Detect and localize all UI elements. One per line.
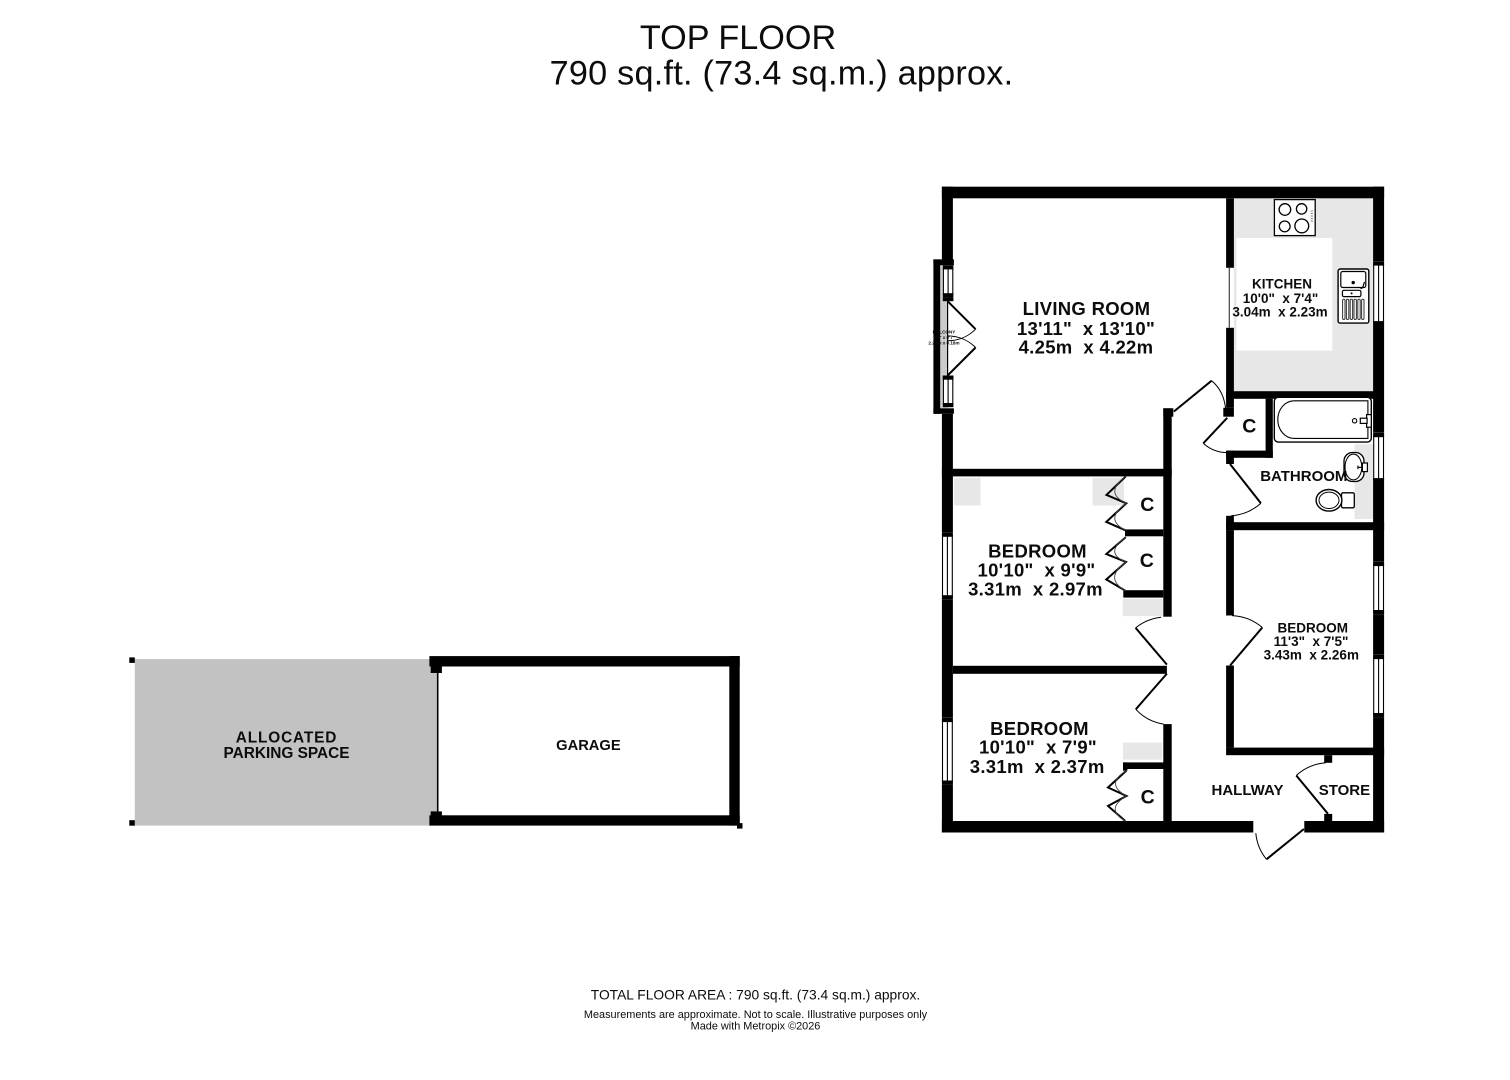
svg-text:BEDROOM: BEDROOM [990, 718, 1089, 739]
svg-text:TOTAL FLOOR AREA : 790 sq.ft.: TOTAL FLOOR AREA : 790 sq.ft. (73.4 sq.m… [591, 988, 920, 1003]
svg-text:10'10" x 7'9": 10'10" x 7'9" [979, 737, 1097, 758]
svg-text:TOP FLOOR: TOP FLOOR [640, 19, 836, 57]
svg-text:GARAGE: GARAGE [556, 738, 621, 754]
svg-text:BEDROOM: BEDROOM [988, 540, 1087, 561]
svg-text:7'4" x 0'7": 7'4" x 0'7" [933, 335, 955, 340]
svg-text:790 sq.ft. (73.4 sq.m.) approx: 790 sq.ft. (73.4 sq.m.) approx. [550, 55, 1014, 93]
svg-text:Measurements are approximate.: Measurements are approximate. Not to sca… [584, 1009, 928, 1021]
svg-text:BATHROOM: BATHROOM [1260, 468, 1347, 485]
svg-text:BALCONY: BALCONY [933, 330, 956, 335]
svg-text:LIVING ROOM: LIVING ROOM [1023, 298, 1151, 319]
svg-text:4.25m x 4.22m: 4.25m x 4.22m [1019, 337, 1154, 358]
svg-text:3.31m x 2.97m: 3.31m x 2.97m [968, 579, 1103, 600]
svg-text:3.04m x 2.23m: 3.04m x 2.23m [1232, 304, 1327, 319]
svg-text:HALLWAY: HALLWAY [1212, 782, 1284, 799]
svg-text:STORE: STORE [1319, 782, 1370, 799]
svg-text:3.43m x 2.26m: 3.43m x 2.26m [1264, 647, 1359, 662]
svg-text:KITCHEN: KITCHEN [1252, 277, 1312, 292]
svg-text:3.31m x 2.37m: 3.31m x 2.37m [970, 756, 1105, 777]
svg-text:Made with Metropix ©2026: Made with Metropix ©2026 [691, 1020, 821, 1032]
svg-text:10'10" x 9'9": 10'10" x 9'9" [978, 560, 1096, 581]
svg-text:C: C [1141, 786, 1155, 808]
svg-text:PARKING SPACE: PARKING SPACE [224, 745, 350, 762]
svg-text:2.24m x 0.18m: 2.24m x 0.18m [928, 341, 959, 346]
svg-text:C: C [1140, 494, 1154, 516]
svg-text:C: C [1140, 550, 1154, 572]
svg-text:C: C [1242, 416, 1256, 438]
